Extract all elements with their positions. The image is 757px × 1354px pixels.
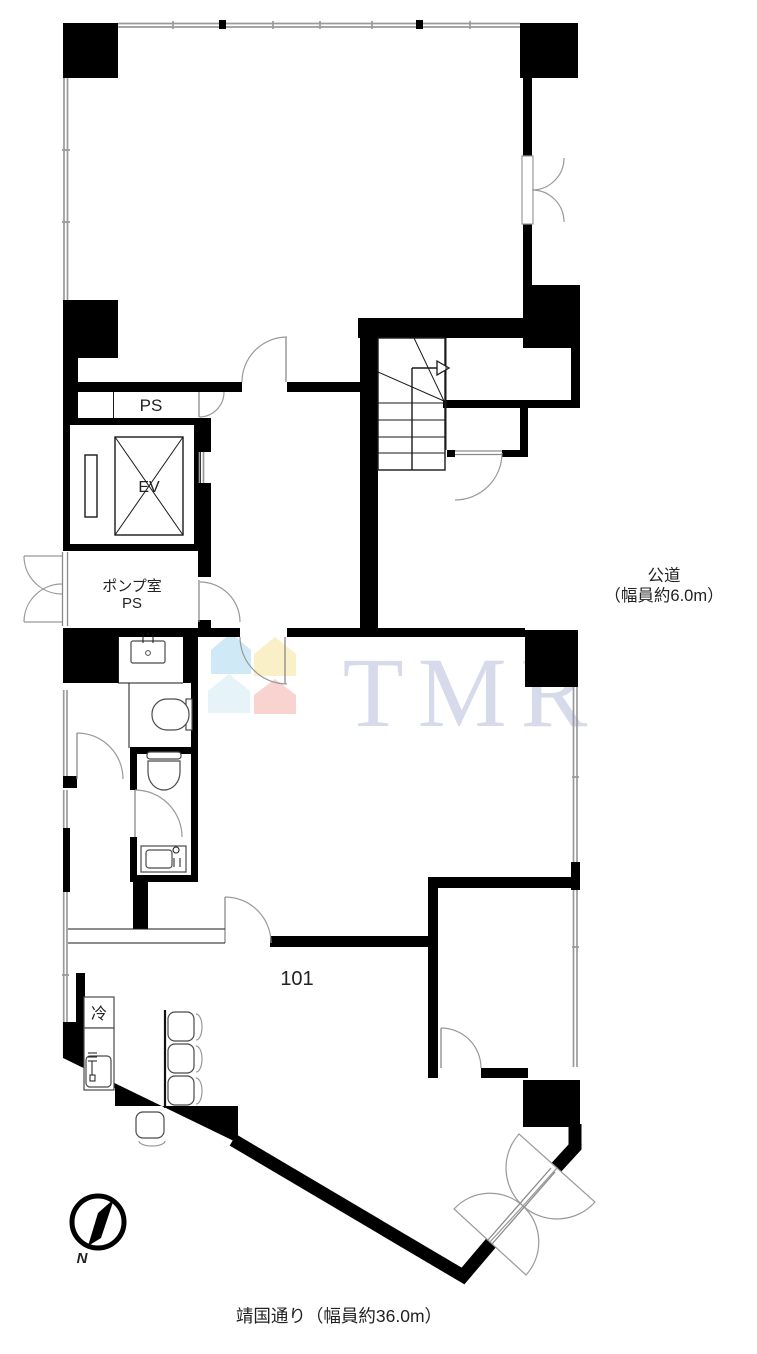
- wall-room-bottom-left: [63, 382, 242, 392]
- wall-br-room-left: [428, 877, 438, 1078]
- wall-101-top-right: [287, 628, 525, 637]
- public-road-label-line2: （幅員約6.0m）: [604, 586, 723, 605]
- door-partition-arc: [225, 897, 271, 943]
- elevator-label: EV: [138, 479, 160, 496]
- wall-small-room-bottom-r: [502, 450, 528, 457]
- wall-room-bottom-right: [287, 382, 360, 392]
- window-mullion: [219, 20, 226, 29]
- wall-hall-right: [360, 318, 378, 635]
- wall-right-upper: [523, 78, 532, 158]
- floor-plan-svg: TMR: [0, 0, 757, 1354]
- wall-diagonal: [233, 1140, 491, 1276]
- north-compass: N: [72, 1196, 124, 1267]
- wall-br-room-bottom: [481, 1068, 528, 1078]
- window-top: [118, 24, 520, 28]
- wall-wc-left-a: [130, 754, 137, 790]
- window-left-mid: [64, 690, 67, 828]
- street-label: 靖国通り（幅員約36.0m）: [236, 1306, 442, 1326]
- pump-room-label: ポンプ室: [102, 578, 162, 595]
- vanity-sink: [146, 850, 172, 868]
- wall-right-stub: [571, 862, 580, 890]
- wall-wc-right: [191, 747, 198, 882]
- wall-left-lower-seg: [63, 828, 70, 892]
- door-storage-leaf: [455, 451, 502, 455]
- counter-chair: [168, 1076, 194, 1105]
- public-road-label-line1: 公道: [648, 566, 681, 585]
- door-ps-arc: [199, 392, 224, 417]
- wall-sink-room-right: [183, 632, 198, 683]
- house-icon-top-left: [211, 633, 251, 674]
- counter-partition-lines: [68, 929, 225, 943]
- pillar-top-left: [63, 23, 118, 78]
- wall-stair-top: [358, 318, 580, 338]
- wall-small-room-right: [520, 408, 528, 457]
- wall-right-upper2: [523, 222, 532, 285]
- pillar-mid-left: [63, 300, 118, 358]
- stair-diagonals: [378, 338, 444, 401]
- urinal-bowl: [152, 699, 189, 730]
- door-pump-hall-arc: [200, 582, 240, 622]
- counter-chair-back: [196, 1046, 202, 1072]
- counter-chair: [136, 1112, 164, 1138]
- wall-partition: [270, 936, 428, 947]
- window-left-upper: [62, 78, 70, 300]
- counter-chair-back: [196, 1014, 202, 1040]
- toilet-tank: [147, 752, 181, 759]
- door-br-room-arc: [441, 1028, 481, 1068]
- door-bath-arc: [77, 733, 123, 779]
- double-door-upper-right: [532, 158, 564, 222]
- staircase: [378, 338, 449, 470]
- pillar-101-top-left: [63, 632, 118, 683]
- window-right-lower: [572, 888, 579, 1067]
- counter-chair-back: [139, 1141, 165, 1146]
- elevator-landing-door: [200, 452, 204, 483]
- door-frame-upper-right: [522, 156, 533, 224]
- wall-corridor-stub: [63, 776, 77, 788]
- house-icon-bottom-right: [254, 679, 296, 714]
- door-hall-top-arc: [242, 337, 287, 382]
- house-icon-bottom-left: [208, 674, 250, 713]
- window-mullion: [416, 20, 423, 29]
- ps-label: PS: [140, 396, 163, 415]
- elevator-room-border: [67, 422, 198, 548]
- pump-room-ps-label: PS: [122, 595, 142, 612]
- house-icon-top-right: [254, 637, 296, 676]
- sink-top: [131, 641, 165, 663]
- wall-small-room-bottom-l: [447, 450, 455, 457]
- toilet-bowl: [148, 761, 180, 790]
- wall-storage-bottom: [443, 400, 580, 408]
- compass-north-label: N: [77, 1250, 89, 1267]
- counter-chair: [168, 1012, 194, 1041]
- wall-entrance-right: [553, 1124, 575, 1171]
- wall-storage-right: [571, 338, 580, 408]
- door-wc-arc: [135, 790, 182, 837]
- pillar-101-top-right: [525, 630, 578, 687]
- elevator-block: [67, 392, 204, 548]
- stair-up-arrow-icon: [437, 361, 449, 375]
- floor-plan-page: TMR: [0, 0, 757, 1354]
- stair-rail: [412, 368, 437, 470]
- pillar-entrance: [523, 1080, 580, 1127]
- wall-bath-bar: [133, 880, 148, 929]
- door-pump-left-frames: [63, 552, 68, 626]
- pillar-top-right: [520, 23, 578, 78]
- counter-chair: [168, 1044, 194, 1073]
- unit-number-label: 101: [280, 968, 313, 990]
- wall-br-room-top: [428, 877, 580, 888]
- refrigerator-label: 冷: [91, 1005, 107, 1023]
- door-storage-arc: [455, 453, 502, 500]
- counter-chair-back: [196, 1078, 202, 1104]
